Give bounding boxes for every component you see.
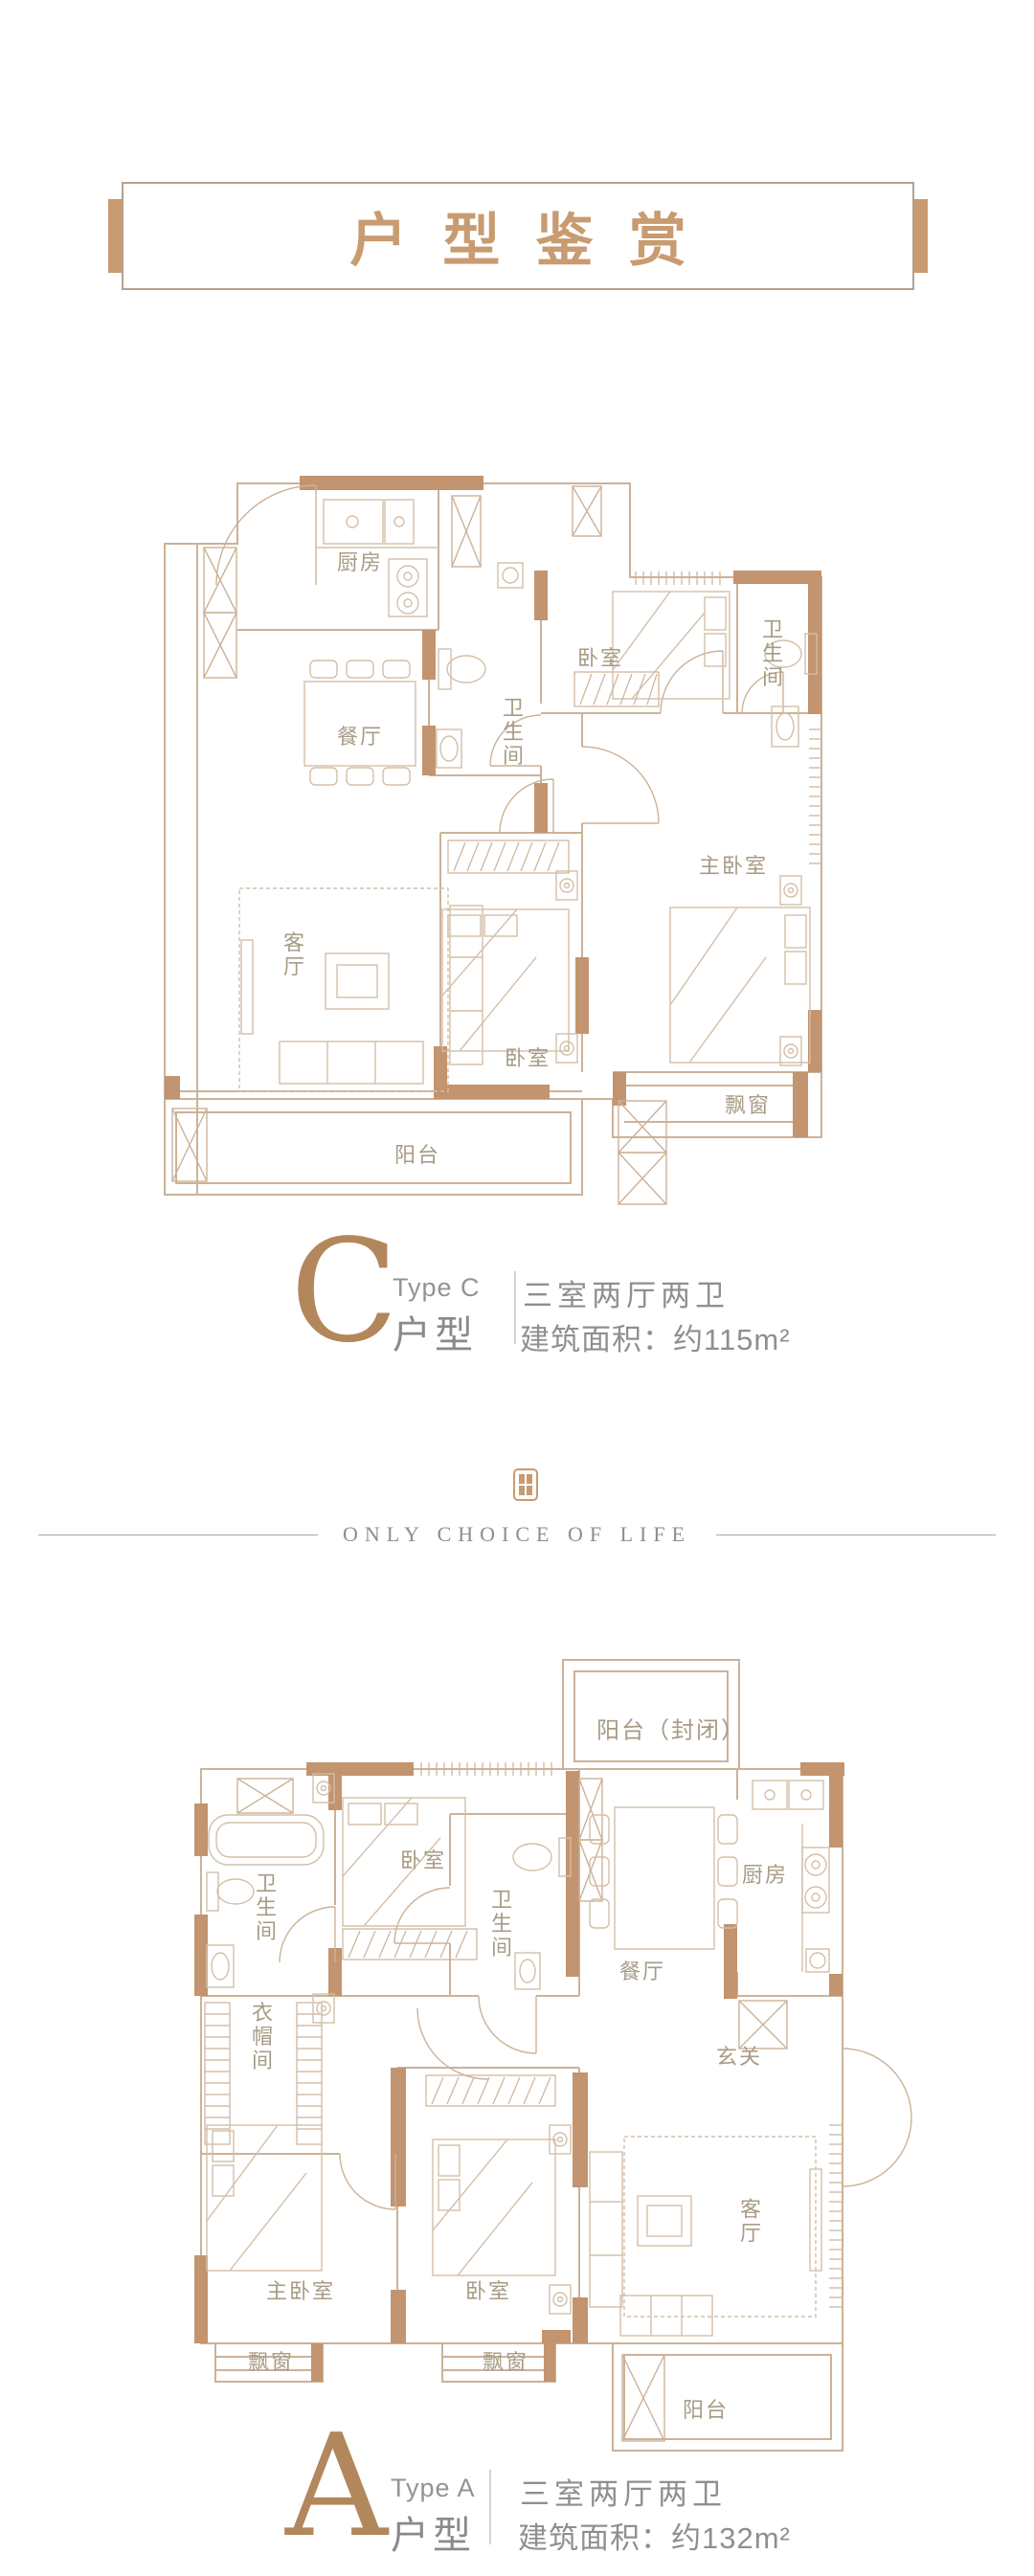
type-a-divider-line	[489, 2470, 491, 2544]
room-label-bed-top-a: 卧室	[400, 1844, 446, 1874]
poster-page: 户型鉴赏	[0, 0, 1034, 2576]
plan-c-doors	[216, 485, 783, 833]
type-a-en: Type A	[391, 2474, 476, 2503]
room-label-bath-left-a: 卫生间	[249, 1872, 280, 1944]
type-a-layout: 三室两厅两卫	[520, 2470, 727, 2513]
room-label-foyer-a: 玄关	[716, 2040, 762, 2071]
room-label-master-a: 主卧室	[266, 2274, 335, 2305]
banner: 户型鉴赏	[108, 182, 928, 290]
section-divider: ONLY CHOICE OF LIFE	[102, 1522, 932, 1547]
room-label-bay-left-a: 飘窗	[248, 2345, 294, 2376]
room-label-bath-right-c: 卫生间	[755, 618, 786, 690]
room-label-bed-bottom-c: 卧室	[505, 1042, 551, 1072]
room-label-balcony-a: 阳台	[683, 2393, 729, 2424]
room-label-balcony-c: 阳台	[394, 1138, 440, 1169]
room-label-kitchen-c: 厨房	[337, 546, 383, 576]
room-label-living-c: 客厅	[277, 931, 307, 979]
type-c-cn: 户型	[393, 1304, 477, 1359]
floorplan-c-drawing	[144, 364, 986, 1206]
page-title: 户型鉴赏	[108, 182, 928, 290]
room-label-dining-c: 餐厅	[337, 720, 383, 750]
type-a-cn: 户型	[391, 2504, 475, 2560]
plan-a-doors	[280, 1888, 911, 2209]
type-c-letter: C	[290, 1237, 398, 1347]
room-label-bay-right-a: 飘窗	[483, 2345, 528, 2376]
plan-c-thick-walls	[165, 476, 821, 1137]
room-label-bath-center-c: 卫生间	[496, 697, 527, 769]
floorplan-a-drawing	[91, 1608, 943, 2460]
type-c-divider-line	[514, 1271, 516, 1344]
divider-slogan: ONLY CHOICE OF LIFE	[343, 1522, 691, 1547]
type-a-area: 建筑面积：约132m²	[518, 2514, 791, 2557]
room-label-bed-top-c: 卧室	[577, 641, 623, 672]
plan-a-shafts	[237, 1779, 787, 2441]
plan-c-furniture	[239, 500, 817, 1091]
type-c-layout: 三室两厅两卫	[523, 1271, 730, 1314]
type-c-en: Type C	[393, 1273, 481, 1303]
room-label-living-a: 客厅	[733, 2198, 764, 2246]
seal-icon	[513, 1468, 538, 1501]
room-label-master-c: 主卧室	[699, 849, 768, 880]
room-label-cloak-a: 衣帽间	[245, 2002, 276, 2073]
plan-c-shafts	[172, 486, 666, 1204]
divider-right-line	[716, 1534, 996, 1535]
room-label-dining-a: 餐厅	[619, 1955, 665, 1985]
room-label-kitchen-a: 厨房	[742, 1858, 788, 1889]
room-label-bed-bottom-a: 卧室	[465, 2274, 511, 2305]
type-c-area: 建筑面积：约115m²	[520, 1315, 791, 1358]
room-label-bath-mid-a: 卫生间	[484, 1889, 515, 1960]
room-label-bay-c: 飘窗	[725, 1088, 771, 1119]
divider-left-line	[38, 1534, 318, 1535]
room-label-balcony-top-a: 阳台（封闭）	[596, 1712, 746, 1745]
